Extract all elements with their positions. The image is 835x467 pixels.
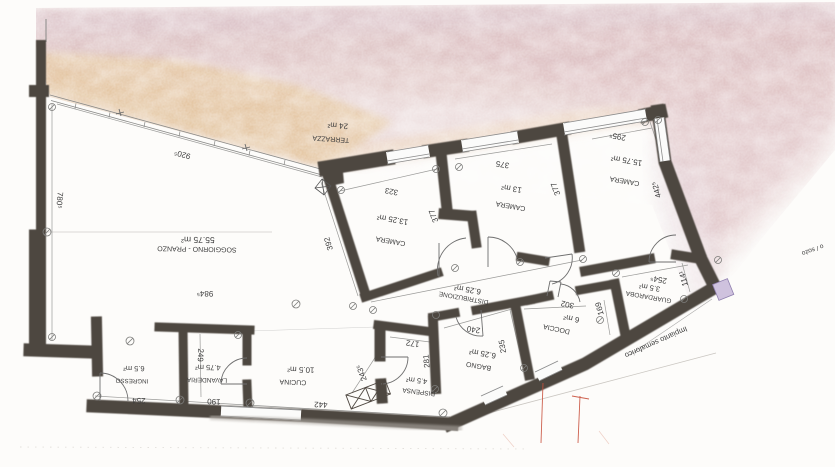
svg-text:LAVANDERIA: LAVANDERIA [186,376,227,384]
svg-text:780⁵: 780⁵ [54,192,64,209]
svg-text:190: 190 [207,397,221,406]
svg-text:984⁵: 984⁵ [197,289,214,298]
svg-text:55.75 m²: 55.75 m² [181,235,215,246]
svg-text:CUCINA: CUCINA [279,378,306,386]
svg-text:281: 281 [421,354,431,369]
svg-text:24 m²: 24 m² [327,120,348,130]
svg-text:4.75 m²: 4.75 m² [195,363,221,372]
svg-text:254: 254 [132,396,146,405]
svg-text:10.5 m²: 10.5 m² [287,365,315,375]
svg-text:249: 249 [196,348,205,362]
svg-text:6.5 m²: 6.5 m² [123,364,145,373]
svg-text:442: 442 [314,400,328,409]
svg-text:SOGGIORNO - PRANZO: SOGGIORNO - PRANZO [157,244,237,252]
svg-text:INGRESSO: INGRESSO [115,377,148,385]
svg-text:172: 172 [405,338,420,349]
